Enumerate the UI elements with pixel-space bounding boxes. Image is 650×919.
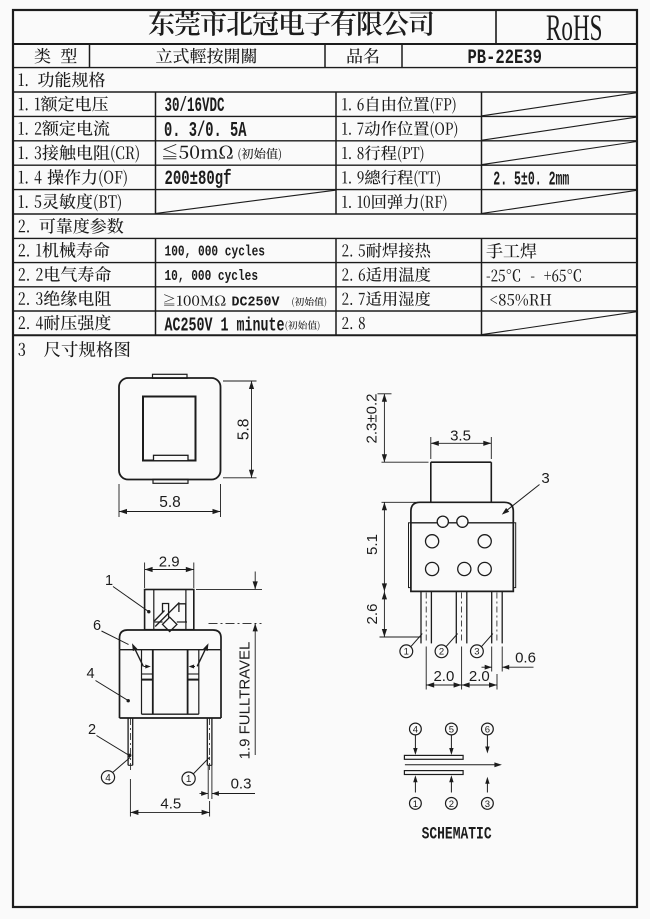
svg-text:6: 6 — [485, 724, 490, 735]
svg-text:200±80gf: 200±80gf — [165, 168, 232, 191]
svg-text:1: 1 — [186, 774, 192, 785]
svg-text:5.8: 5.8 — [159, 494, 181, 511]
svg-text:1: 1 — [105, 573, 113, 589]
svg-text:30/16VDC: 30/16VDC — [165, 95, 225, 118]
svg-text:5.8: 5.8 — [236, 419, 253, 441]
svg-text:1: 1 — [404, 647, 409, 658]
svg-text:4: 4 — [105, 773, 111, 784]
svg-text:2. 5±0. 2mm: 2. 5±0. 2mm — [493, 168, 569, 190]
svg-text:2: 2 — [439, 647, 444, 658]
svg-text:2.6: 2.6 — [364, 604, 381, 625]
svg-text:0.3: 0.3 — [231, 776, 252, 793]
svg-text:100, 000 cycles: 100, 000 cycles — [165, 245, 266, 261]
svg-text:SCHEMATIC: SCHEMATIC — [422, 825, 492, 845]
svg-text:RoHS: RoHS — [546, 7, 603, 48]
svg-text:2: 2 — [449, 799, 454, 810]
svg-text:6: 6 — [93, 618, 101, 634]
svg-text:5.1: 5.1 — [364, 534, 381, 555]
svg-text:1: 1 — [413, 799, 418, 810]
svg-text:5: 5 — [449, 724, 454, 735]
svg-text:3: 3 — [485, 799, 490, 810]
svg-text:4: 4 — [86, 666, 94, 682]
svg-text:2.0: 2.0 — [433, 668, 454, 685]
svg-text:3.5: 3.5 — [450, 428, 471, 445]
svg-text:3: 3 — [474, 647, 479, 658]
svg-text:2.0: 2.0 — [469, 668, 490, 685]
svg-text:2.9: 2.9 — [159, 553, 180, 570]
svg-text:4.5: 4.5 — [160, 796, 181, 813]
svg-text:DC250V: DC250V — [232, 295, 281, 310]
svg-text:0. 3/0. 5A: 0. 3/0. 5A — [164, 119, 247, 143]
svg-text:10, 000 cycles: 10, 000 cycles — [165, 269, 259, 285]
svg-text:4: 4 — [413, 724, 418, 735]
svg-text:PB-22E39: PB-22E39 — [468, 47, 543, 70]
svg-text:2: 2 — [88, 722, 96, 738]
svg-text:3: 3 — [541, 470, 549, 487]
svg-text:0.6: 0.6 — [515, 650, 536, 667]
svg-text:1.9 FULLTRAVEL: 1.9 FULLTRAVEL — [237, 642, 254, 760]
svg-text:AC250V 1 minute: AC250V 1 minute — [165, 315, 285, 337]
svg-text:2.3±0.2: 2.3±0.2 — [364, 394, 381, 444]
